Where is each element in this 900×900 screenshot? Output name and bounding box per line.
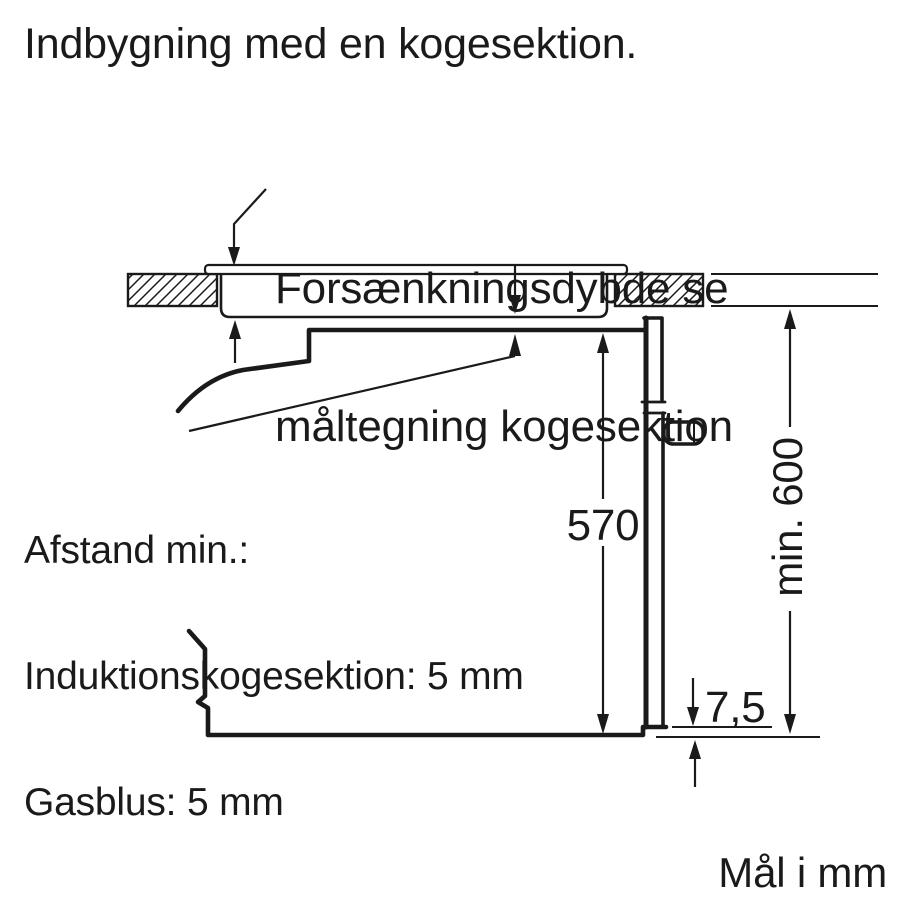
down-arrow-icon <box>784 714 796 734</box>
dimension-label-min-niche-height: min. 600 <box>765 412 811 622</box>
up-arrow-icon <box>784 309 796 329</box>
worktop-extension-lines <box>711 274 878 306</box>
up-arrow-icon <box>689 740 701 759</box>
recess-depth-callout-line1: Forsænkningsdybde se <box>275 266 733 312</box>
down-arrow-icon <box>597 714 609 734</box>
units-note: Mål i mm <box>665 849 887 896</box>
dimension-label-oven-height: 570 <box>541 501 665 550</box>
down-arrow-icon <box>228 247 240 266</box>
clearance-note-gas: Gasblus: 5 mm <box>24 782 524 824</box>
worktop-left-section <box>128 274 217 306</box>
dimension-label-bottom-recess: 7,5 <box>705 683 766 732</box>
down-arrow-icon <box>687 707 699 726</box>
clearance-note-induction: Induktionskogesektion: 5 mm <box>24 656 524 698</box>
up-arrow-icon <box>229 320 241 339</box>
installation-diagram-page: Indbygning med en kogesektion. Forsænkni… <box>0 0 900 900</box>
clearance-note-heading: Afstand min.: <box>24 530 524 572</box>
recess-depth-callout-line2: måltegning kogesektion <box>275 404 733 450</box>
clearance-note: Afstand min.: Induktionskogesektion: 5 m… <box>24 446 524 900</box>
page-title: Indbygning med en kogesektion. <box>24 20 637 68</box>
callout-leader-line <box>234 189 266 249</box>
